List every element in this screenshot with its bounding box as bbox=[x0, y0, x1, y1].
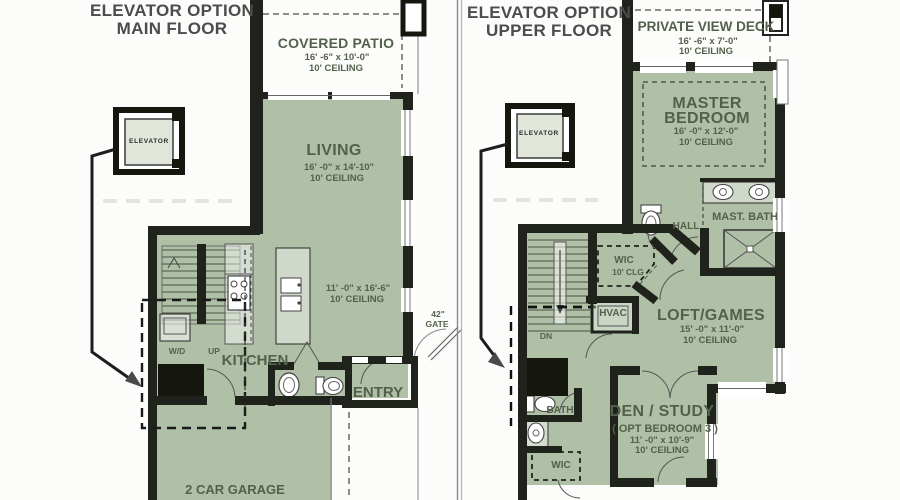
hall-name: HALL bbox=[673, 222, 700, 232]
stove bbox=[228, 276, 250, 310]
elevator-arrow-main bbox=[92, 149, 142, 387]
loft-ceiling: 10' CEILING bbox=[683, 336, 737, 346]
plan-divider bbox=[458, 0, 462, 500]
wic-upper-ceiling: 10' CLG bbox=[612, 268, 644, 277]
entry-name: ENTRY bbox=[353, 385, 403, 400]
deck-name: PRIVATE VIEW DECK bbox=[638, 20, 775, 34]
kitchen-island bbox=[276, 248, 310, 344]
loft-dims: 15' -0" x 11'-0" bbox=[680, 325, 744, 335]
deck-ceiling: 10' CEILING bbox=[679, 47, 733, 57]
main-floor-title-line1: ELEVATOR OPTION bbox=[90, 2, 254, 19]
bath-name: BATH bbox=[546, 406, 573, 416]
hvac-name: HVAC bbox=[599, 309, 627, 319]
garage-name: 2 CAR GARAGE bbox=[185, 483, 285, 496]
kitchen-name: KITCHEN bbox=[222, 353, 289, 368]
den-ceiling: 10' CEILING bbox=[635, 446, 689, 456]
gate-42in bbox=[414, 327, 461, 360]
gate-label-line2: GATE bbox=[426, 320, 449, 329]
chimney-main bbox=[403, 1, 424, 34]
kitchen-ceiling: 10' CEILING bbox=[330, 295, 384, 305]
stairs-up-label: UP bbox=[208, 347, 220, 356]
den-name: DEN / STUDY bbox=[610, 404, 715, 420]
covered-patio-dims: 16' -6" x 10'-0" bbox=[305, 53, 370, 63]
covered-patio-name: COVERED PATIO bbox=[278, 36, 394, 50]
elevator-label-upper: ELEVATOR bbox=[519, 131, 559, 138]
living-dims: 16' -0" x 14'-10" bbox=[304, 163, 374, 173]
master-bath-name: MAST. BATH bbox=[712, 212, 778, 223]
upper-floor-title-line2: UPPER FLOOR bbox=[486, 22, 612, 39]
master-bedroom-name2: BEDROOM bbox=[664, 111, 750, 127]
floorplan-canvas bbox=[0, 0, 900, 500]
elevator-label-main: ELEVATOR bbox=[129, 139, 169, 146]
loft-name: LOFT/GAMES bbox=[657, 308, 765, 324]
floorplan-page: ELEVATOR OPTION MAIN FLOOR COVERED PATIO… bbox=[0, 0, 900, 500]
kitchen-dims: 11' -0" x 16'-6" bbox=[326, 284, 390, 294]
wic-upper-name: WIC bbox=[614, 256, 633, 266]
living-ceiling: 10' CEILING bbox=[310, 174, 364, 184]
washer-dryer bbox=[160, 314, 190, 341]
covered-patio-ceiling: 10' CEILING bbox=[309, 64, 363, 74]
master-bedroom-ceiling: 10' CEILING bbox=[679, 138, 733, 148]
washer-dryer-label: W/D bbox=[169, 347, 186, 356]
main-floor-title-line2: MAIN FLOOR bbox=[117, 20, 228, 37]
deck-corner-column bbox=[777, 60, 788, 104]
master-bedroom-dims: 16' -0" x 12'-0" bbox=[674, 127, 739, 137]
main-floor-plan bbox=[92, 0, 461, 500]
living-name: LIVING bbox=[306, 143, 361, 159]
stairs-dn-label: DN bbox=[540, 332, 552, 341]
upper-floor-title-line1: ELEVATOR OPTION bbox=[467, 4, 631, 21]
gate-label-line1: 42" bbox=[431, 310, 445, 319]
master-bath-sinks bbox=[703, 182, 780, 203]
elevator-arrow-upper bbox=[481, 144, 508, 368]
wic-lower-name: WIC bbox=[551, 461, 570, 471]
den-subtitle: ( OPT BEDROOM 3 ) bbox=[612, 424, 718, 435]
elevator-shaft-upper bbox=[524, 358, 568, 396]
